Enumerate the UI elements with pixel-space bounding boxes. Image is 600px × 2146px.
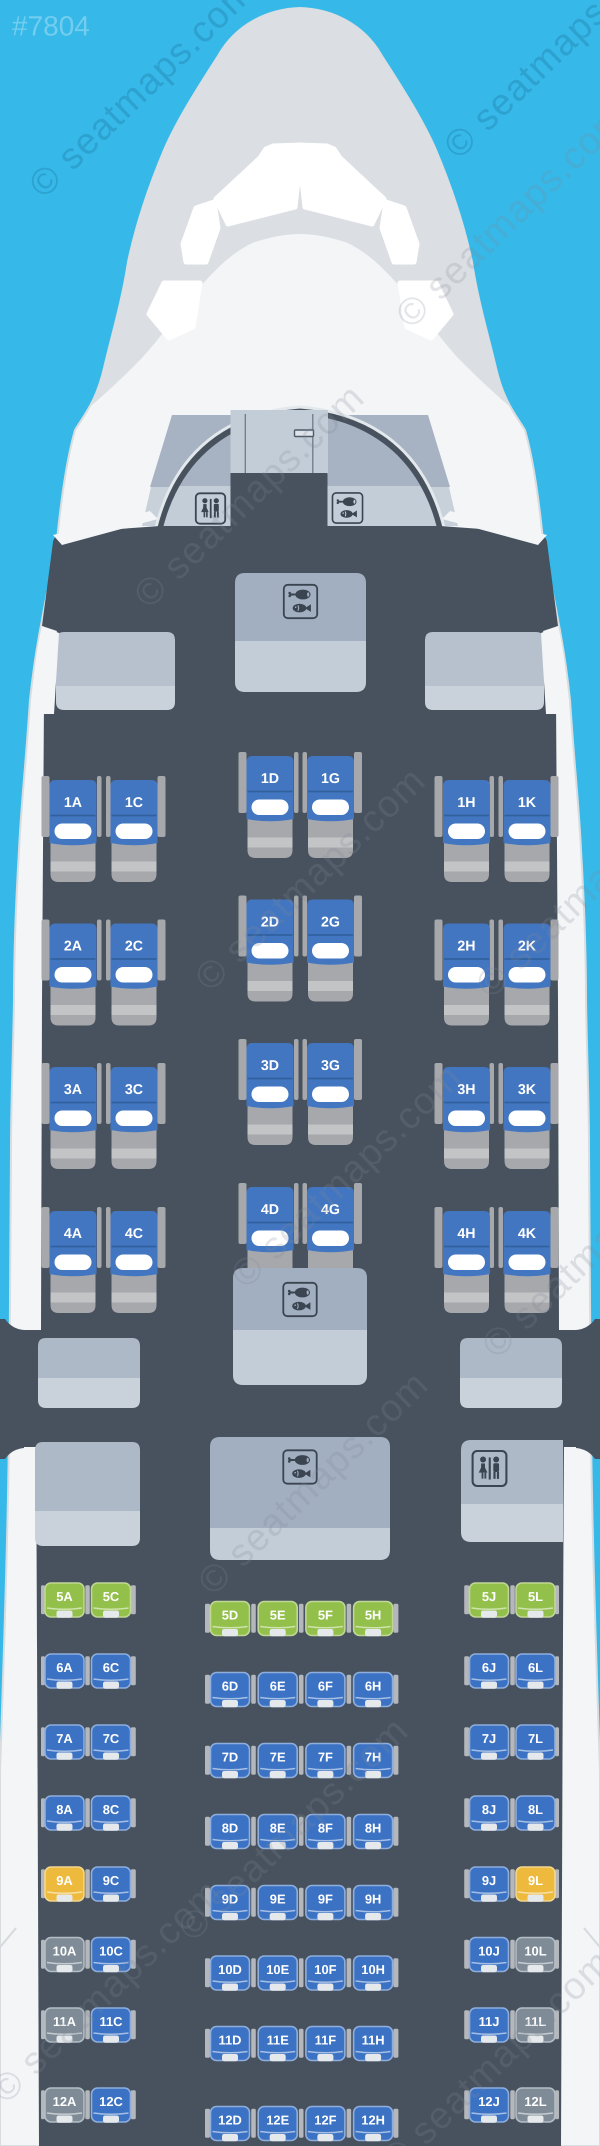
svg-text:3K: 3K xyxy=(518,1082,537,1098)
svg-text:6J: 6J xyxy=(482,1660,496,1675)
svg-text:1C: 1C xyxy=(125,795,143,811)
svg-text:10F: 10F xyxy=(314,1962,336,1977)
svg-text:5D: 5D xyxy=(222,1608,238,1623)
svg-text:3D: 3D xyxy=(261,1058,279,1074)
svg-text:1A: 1A xyxy=(64,795,82,811)
svg-text:12H: 12H xyxy=(361,2113,385,2128)
svg-text:6E: 6E xyxy=(270,1679,286,1694)
svg-text:4A: 4A xyxy=(64,1226,82,1242)
svg-text:1H: 1H xyxy=(457,795,475,811)
svg-text:6H: 6H xyxy=(365,1679,381,1694)
svg-text:9C: 9C xyxy=(103,1873,119,1888)
svg-text:5H: 5H xyxy=(365,1608,381,1623)
svg-text:12L: 12L xyxy=(524,2094,546,2109)
svg-text:5J: 5J xyxy=(482,1589,496,1604)
svg-text:7A: 7A xyxy=(56,1731,72,1746)
svg-text:4H: 4H xyxy=(457,1226,475,1242)
svg-text:2G: 2G xyxy=(321,914,340,930)
svg-text:10A: 10A xyxy=(53,1944,77,1959)
svg-text:1K: 1K xyxy=(518,795,537,811)
svg-text:12A: 12A xyxy=(53,2094,77,2109)
svg-text:9L: 9L xyxy=(528,1873,543,1888)
svg-text:5E: 5E xyxy=(270,1608,286,1623)
svg-text:11F: 11F xyxy=(315,2033,337,2048)
svg-text:5F: 5F xyxy=(318,1608,333,1623)
svg-text:12C: 12C xyxy=(99,2094,123,2109)
svg-text:7L: 7L xyxy=(528,1731,543,1746)
svg-text:1G: 1G xyxy=(321,771,340,787)
svg-text:6A: 6A xyxy=(56,1660,72,1675)
svg-text:7J: 7J xyxy=(482,1731,496,1746)
svg-text:11J: 11J xyxy=(479,2014,500,2029)
svg-text:12F: 12F xyxy=(314,2113,336,2128)
svg-text:10D: 10D xyxy=(218,1962,242,1977)
svg-text:7F: 7F xyxy=(318,1750,333,1765)
svg-text:12D: 12D xyxy=(218,2113,242,2128)
svg-text:8J: 8J xyxy=(482,1802,496,1817)
svg-text:9H: 9H xyxy=(365,1892,381,1907)
svg-text:#7804: #7804 xyxy=(12,11,90,42)
svg-text:9E: 9E xyxy=(270,1892,286,1907)
svg-text:4K: 4K xyxy=(518,1226,537,1242)
svg-text:8L: 8L xyxy=(528,1802,543,1817)
svg-text:10H: 10H xyxy=(361,1962,385,1977)
svg-text:2A: 2A xyxy=(64,938,82,954)
svg-text:3A: 3A xyxy=(64,1082,82,1098)
svg-text:5L: 5L xyxy=(528,1589,543,1604)
svg-text:7E: 7E xyxy=(270,1750,286,1765)
svg-text:6C: 6C xyxy=(103,1660,119,1675)
svg-text:3G: 3G xyxy=(321,1058,340,1074)
svg-text:9J: 9J xyxy=(482,1873,496,1888)
svg-text:8D: 8D xyxy=(222,1821,238,1836)
svg-text:6L: 6L xyxy=(528,1660,543,1675)
svg-text:12E: 12E xyxy=(266,2113,289,2128)
svg-text:10J: 10J xyxy=(478,1944,500,1959)
svg-text:2H: 2H xyxy=(457,938,475,954)
svg-text:6F: 6F xyxy=(318,1679,333,1694)
svg-text:7D: 7D xyxy=(222,1750,238,1765)
svg-text:9F: 9F xyxy=(318,1892,333,1907)
svg-text:11D: 11D xyxy=(219,2033,242,2048)
svg-text:2C: 2C xyxy=(125,938,143,954)
svg-text:1D: 1D xyxy=(261,771,279,787)
svg-text:10L: 10L xyxy=(524,1944,546,1959)
svg-text:6D: 6D xyxy=(222,1679,238,1694)
svg-text:11H: 11H xyxy=(362,2033,385,2048)
svg-text:10E: 10E xyxy=(266,1962,289,1977)
svg-text:8C: 8C xyxy=(103,1802,119,1817)
svg-text:8A: 8A xyxy=(56,1802,72,1817)
svg-text:7C: 7C xyxy=(103,1731,119,1746)
svg-text:11E: 11E xyxy=(267,2033,290,2048)
svg-text:9A: 9A xyxy=(56,1873,72,1888)
svg-text:5C: 5C xyxy=(103,1589,119,1604)
svg-text:5A: 5A xyxy=(56,1589,72,1604)
svg-text:4C: 4C xyxy=(125,1226,143,1242)
svg-text:8H: 8H xyxy=(365,1821,381,1836)
svg-text:3C: 3C xyxy=(125,1082,143,1098)
